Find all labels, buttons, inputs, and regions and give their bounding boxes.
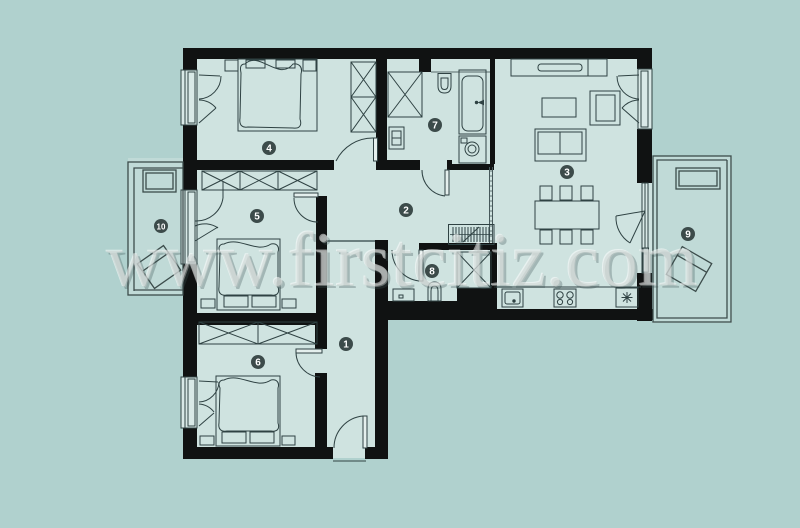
svg-text:2: 2 [403, 206, 409, 217]
svg-text:4: 4 [266, 144, 272, 155]
svg-text:www.firstcitiz.com: www.firstcitiz.com [107, 217, 699, 303]
svg-text:6: 6 [255, 358, 261, 369]
svg-text:7: 7 [432, 121, 438, 132]
svg-text:3: 3 [564, 168, 570, 179]
svg-text:1: 1 [343, 340, 349, 351]
